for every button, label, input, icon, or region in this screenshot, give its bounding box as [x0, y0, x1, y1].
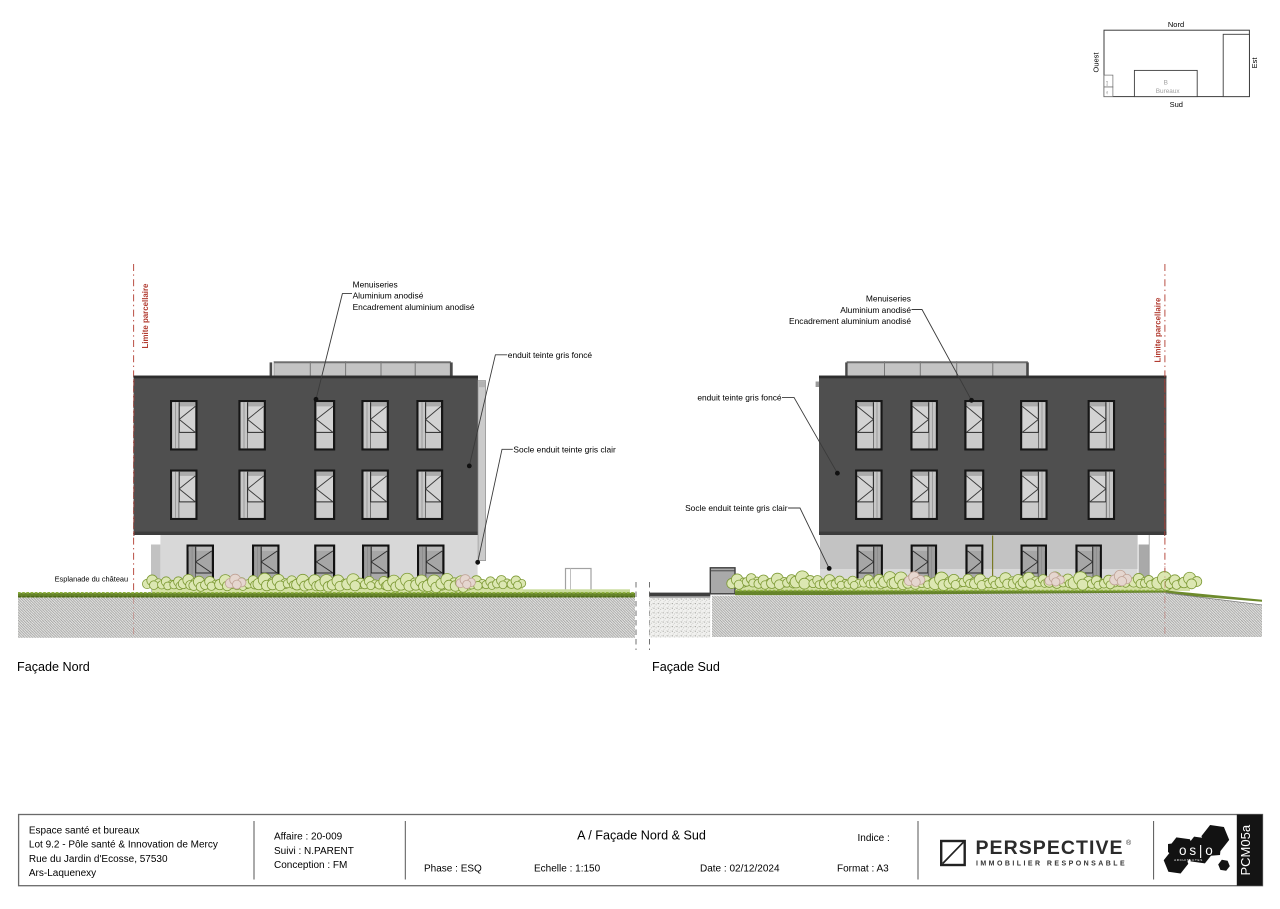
- svg-text:Ars-Laquenexy: Ars-Laquenexy: [29, 868, 96, 879]
- svg-text:Sud: Sud: [1170, 100, 1183, 109]
- svg-text:Encadrement aluminium anodisé: Encadrement aluminium anodisé: [353, 302, 475, 312]
- svg-text:Lot 9.2 - Pôle santé & Innovat: Lot 9.2 - Pôle santé & Innovation de Mer…: [29, 840, 218, 851]
- svg-text:Format : A3: Format : A3: [837, 863, 889, 874]
- svg-text:Encadrement aluminium anodisé: Encadrement aluminium anodisé: [789, 316, 911, 326]
- svg-text:PCM05a: PCM05a: [1238, 824, 1253, 875]
- svg-text:Espace santé et bureaux: Espace santé et bureaux: [29, 825, 140, 836]
- svg-text:Rue du Jardin d'Ecosse, 57530: Rue du Jardin d'Ecosse, 57530: [29, 854, 168, 865]
- svg-text:Limite parcellaire: Limite parcellaire: [141, 283, 150, 349]
- svg-text:Menuiseries: Menuiseries: [866, 294, 911, 304]
- svg-text:enduit teinte gris foncé: enduit teinte gris foncé: [508, 350, 593, 360]
- svg-text:Phase : ESQ: Phase : ESQ: [424, 863, 482, 874]
- svg-text:Affaire : 20-009: Affaire : 20-009: [274, 831, 343, 842]
- svg-text:Conception : FM: Conception : FM: [274, 860, 347, 871]
- svg-text:enduit teinte gris foncé: enduit teinte gris foncé: [697, 393, 782, 403]
- svg-text:®: ®: [1126, 839, 1132, 847]
- svg-text:Ouest: Ouest: [1092, 52, 1101, 73]
- svg-text:os|o: os|o: [1179, 843, 1215, 858]
- svg-text:Esplanade du château: Esplanade du château: [55, 575, 129, 584]
- svg-text:Socle enduit teinte gris clair: Socle enduit teinte gris clair: [513, 444, 616, 454]
- svg-text:Hall: Hall: [1105, 81, 1109, 87]
- svg-text:Aluminium anodisé: Aluminium anodisé: [353, 291, 424, 301]
- svg-text:Menuiseries: Menuiseries: [353, 279, 398, 289]
- svg-text:Façade Nord: Façade Nord: [17, 660, 90, 674]
- svg-text:Date : 02/12/2024: Date : 02/12/2024: [700, 863, 780, 874]
- svg-text:Façade Sud: Façade Sud: [652, 660, 720, 674]
- svg-text:Indice :: Indice :: [858, 833, 890, 844]
- svg-text:ARCHITECTES: ARCHITECTES: [1174, 858, 1203, 862]
- svg-text:Limite parcellaire: Limite parcellaire: [1153, 297, 1162, 363]
- svg-text:Bureaux: Bureaux: [1156, 88, 1181, 95]
- svg-text:PERSPECTIVE: PERSPECTIVE: [976, 837, 1124, 859]
- svg-text:A / Façade Nord & Sud: A / Façade Nord & Sud: [577, 828, 706, 842]
- svg-text:Aluminium anodisé: Aluminium anodisé: [840, 305, 911, 315]
- svg-text:B: B: [1164, 80, 1168, 87]
- svg-text:Echelle : 1:150: Echelle : 1:150: [534, 863, 601, 874]
- svg-text:Socle enduit teinte gris clair: Socle enduit teinte gris clair: [685, 503, 788, 513]
- svg-text:ds: ds: [1105, 91, 1109, 95]
- svg-text:IMMOBILIER RESPONSABLE: IMMOBILIER RESPONSABLE: [976, 861, 1127, 868]
- svg-text:Est: Est: [1250, 57, 1259, 69]
- svg-text:Nord: Nord: [1168, 20, 1184, 29]
- svg-text:Suivi : N.PARENT: Suivi : N.PARENT: [274, 846, 354, 857]
